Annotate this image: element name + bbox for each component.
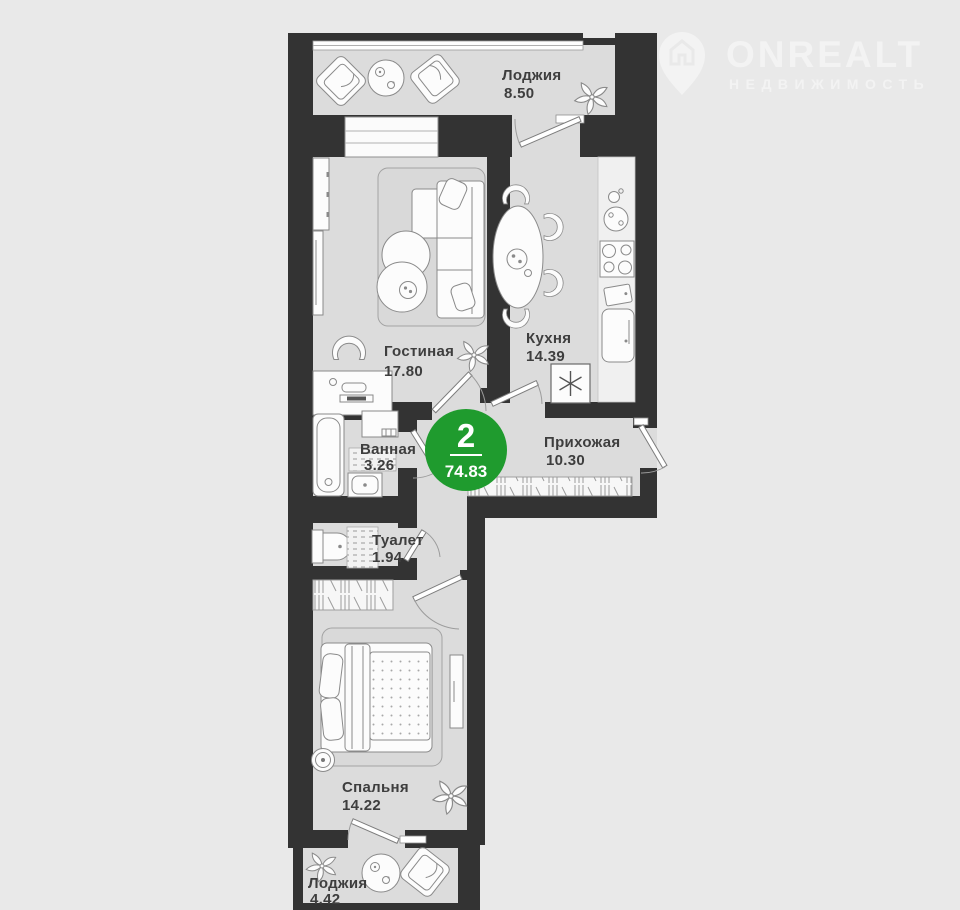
room-label: Спальня [342, 779, 409, 796]
logo-brand: ONREALT [726, 34, 923, 75]
total-area-badge: 2 74.83 [425, 409, 507, 491]
toilet-tank [312, 530, 323, 563]
room-label: Лоджия [308, 875, 367, 892]
room-label: Прихожая [544, 434, 620, 451]
badge-total-area: 74.83 [445, 462, 488, 481]
wardrobe-hatch [313, 580, 393, 610]
toilet-bowl [323, 533, 351, 560]
plate-dot [512, 254, 516, 258]
cutting-board [604, 284, 633, 306]
wall-segment [467, 496, 657, 518]
room-label: Кухня [526, 330, 571, 347]
cabinet-handle [327, 192, 330, 197]
room-area: 1.94 [372, 549, 403, 566]
washer-drawer [382, 429, 396, 436]
sink [604, 207, 628, 231]
wall-segment [467, 496, 485, 845]
desk [313, 371, 392, 415]
round-table [368, 60, 404, 96]
room-area: 3.26 [364, 457, 394, 474]
stool-dot [321, 758, 325, 762]
wall-segment [458, 845, 480, 910]
tray-dot [409, 290, 412, 293]
floor-plan-page: ONREALT НЕДВИЖИМОСТЬ [0, 0, 960, 910]
wall-segment [313, 496, 417, 523]
living-window-sill [345, 117, 438, 157]
pouf [377, 262, 427, 312]
cabinet-handle [327, 172, 330, 177]
sink-drain [363, 483, 367, 487]
cabinet-handle [327, 212, 330, 217]
plate-dot [518, 260, 522, 264]
room-area: 10.30 [546, 452, 585, 469]
room-label: Туалет [372, 532, 424, 549]
wall-segment [293, 845, 303, 910]
logo-tagline: НЕДВИЖИМОСТЬ [729, 76, 930, 92]
badge-rooms-count: 2 [457, 417, 475, 454]
wall-segment [313, 33, 583, 41]
wall-segment [583, 38, 615, 45]
room-label: Ванная [360, 441, 416, 458]
bathtub [313, 414, 344, 496]
pillow [320, 697, 344, 741]
door-frame-tick [400, 836, 426, 843]
room-label: Лоджия [502, 67, 561, 84]
room-area: 14.39 [526, 348, 565, 365]
toilet-dot [338, 545, 342, 549]
tray-dot [404, 286, 407, 289]
wall-segment [288, 33, 313, 845]
laptop-keys [347, 397, 366, 401]
blanket [345, 644, 370, 751]
wall-segment [398, 402, 417, 432]
wall-segment [635, 157, 657, 402]
floor-plan-canvas: ONREALT НЕДВИЖИМОСТЬ [0, 0, 960, 910]
room-area: 4.42 [310, 891, 340, 908]
plate [507, 249, 527, 269]
room-area: 17.80 [384, 363, 423, 380]
desk-pad [342, 383, 366, 392]
pot [609, 192, 620, 203]
room-label: Гостиная [384, 343, 454, 360]
round-table [362, 854, 400, 892]
dresser [450, 655, 463, 728]
mattress-dots [372, 654, 428, 738]
room-area: 14.22 [342, 797, 381, 814]
shelf [313, 231, 323, 315]
door-frame-tick [634, 418, 648, 425]
wall-segment [545, 402, 633, 418]
fridge-dot [625, 340, 628, 343]
room-area: 8.50 [504, 85, 534, 102]
